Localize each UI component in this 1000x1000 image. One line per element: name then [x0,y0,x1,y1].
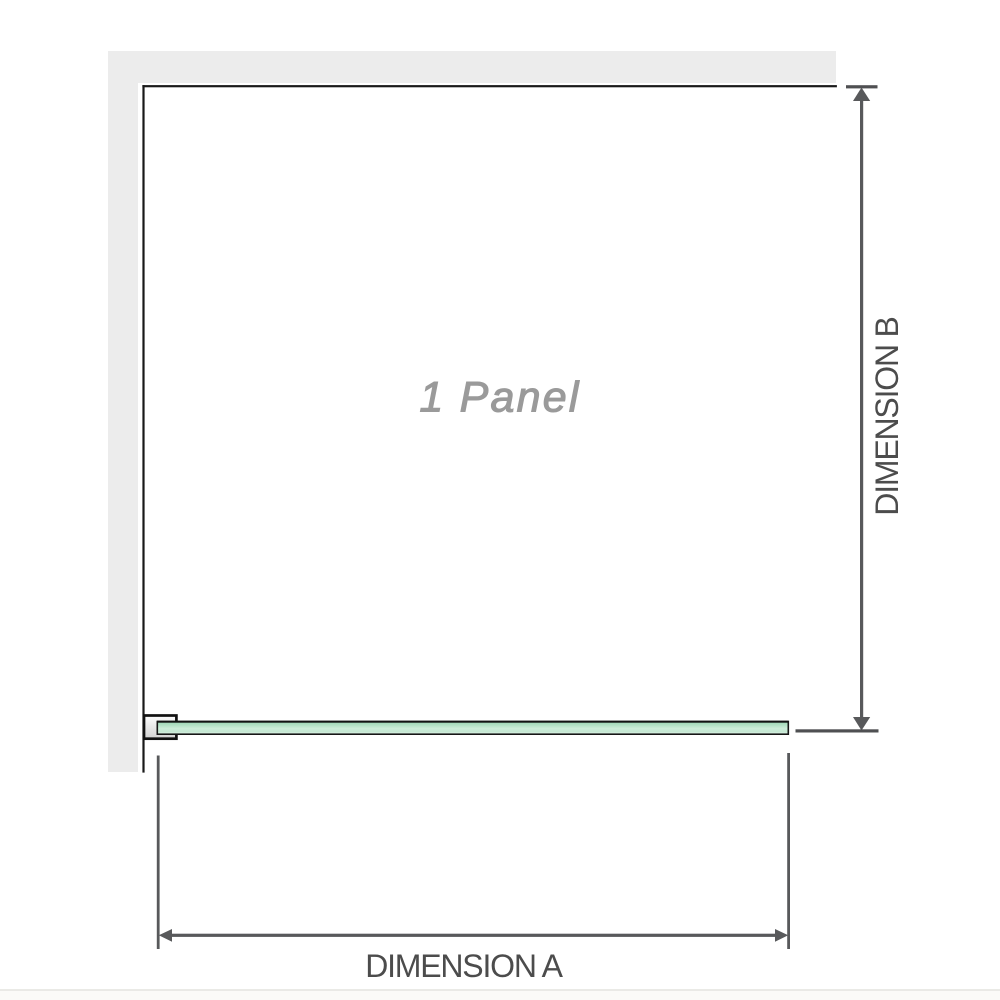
svg-text:DIMENSION A: DIMENSION A [365,948,563,984]
svg-text:1 Panel: 1 Panel [419,374,580,422]
svg-text:DIMENSION B: DIMENSION B [869,317,905,515]
